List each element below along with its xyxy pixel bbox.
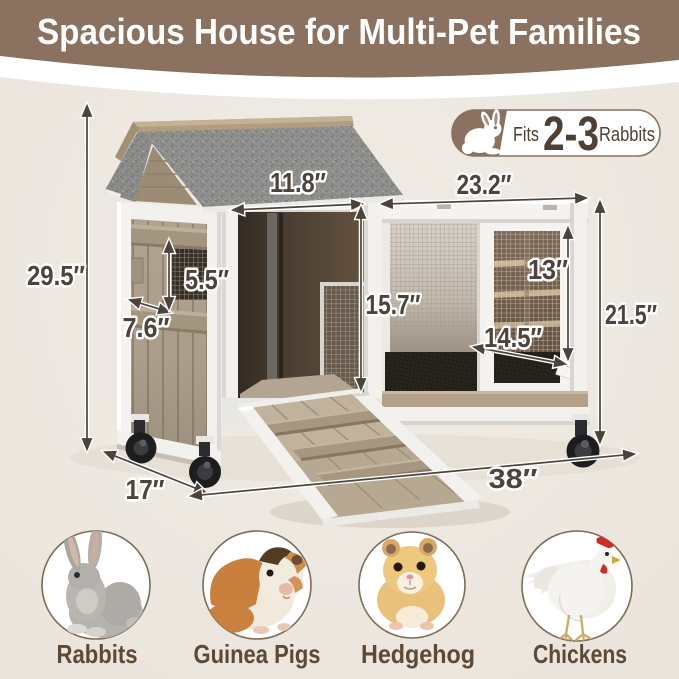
svg-text:Guinea Pigs: Guinea Pigs [194,639,321,669]
svg-text:14.5″: 14.5″ [484,322,542,353]
svg-text:23.2″: 23.2″ [457,169,512,200]
svg-text:Chickens: Chickens [533,639,627,669]
svg-text:29.5″: 29.5″ [27,260,85,291]
svg-text:21.5″: 21.5″ [605,299,657,330]
svg-text:Rabbits: Rabbits [57,639,138,669]
svg-text:2-3: 2-3 [543,108,599,161]
svg-text:38″: 38″ [489,463,538,494]
svg-text:15.7″: 15.7″ [366,289,421,320]
svg-text:Hedgehog: Hedgehog [361,639,475,669]
svg-text:5.5″: 5.5″ [185,264,229,295]
svg-text:Spacious House for Multi-Pet F: Spacious House for Multi-Pet Families [37,11,641,52]
svg-text:Fits: Fits [513,124,539,146]
svg-text:Rabbits: Rabbits [599,124,655,146]
svg-text:13″: 13″ [528,254,568,285]
svg-text:11.8″: 11.8″ [270,167,326,198]
svg-text:17″: 17″ [126,474,165,505]
svg-text:7.6″: 7.6″ [123,312,170,343]
